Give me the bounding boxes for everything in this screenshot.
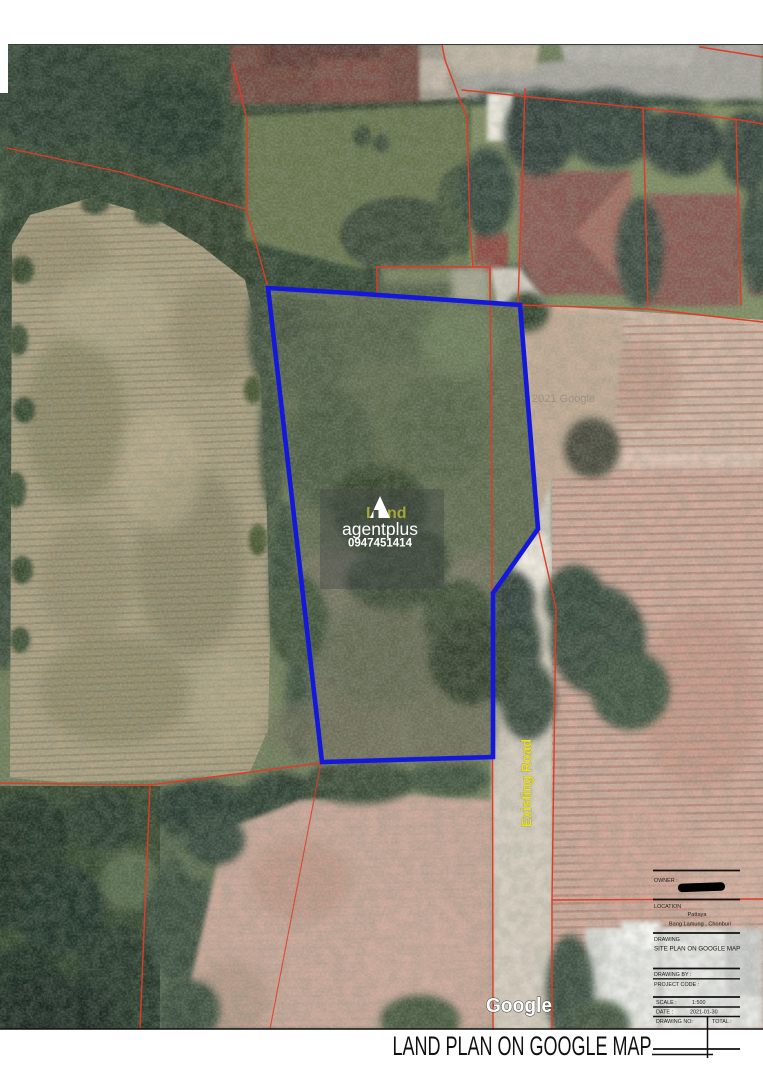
svg-text:Google: Google [486,994,552,1017]
svg-text:DRAWING NO:: DRAWING NO: [656,1019,693,1025]
svg-text:DRAWING BY :: DRAWING BY : [654,972,691,978]
svg-text:agentplus: agentplus [342,519,418,539]
svg-text:SCALE :: SCALE : [656,1000,677,1006]
svg-text:PROJECT CODE :: PROJECT CODE : [654,982,699,988]
svg-text:SITE PLAN ON GOOGLE MAP: SITE PLAN ON GOOGLE MAP [654,946,740,953]
svg-text:DATE :: DATE : [656,1010,673,1016]
svg-text:LOCATION: LOCATION [654,904,681,910]
svg-text:©2021 Google: ©2021 Google [312,70,383,82]
svg-text:Bang Lamung , Chonburi: Bang Lamung , Chonburi [669,922,731,928]
svg-text:0947451414: 0947451414 [348,538,413,550]
svg-text:Pattaya: Pattaya [688,912,708,918]
svg-text:TOTAL :: TOTAL : [712,1019,732,1025]
svg-text:OWNER :: OWNER : [654,878,678,884]
svg-text:2021 Google: 2021 Google [532,393,595,405]
svg-text:1:500: 1:500 [692,1000,706,1006]
svg-text:LAND PLAN ON GOOGLE MAP: LAND PLAN ON GOOGLE MAP [393,1031,652,1061]
svg-text:DRAWING: DRAWING [654,937,680,943]
svg-text:Existing Road: Existing Road [518,739,534,827]
svg-text:2021-01-30: 2021-01-30 [690,1010,718,1016]
